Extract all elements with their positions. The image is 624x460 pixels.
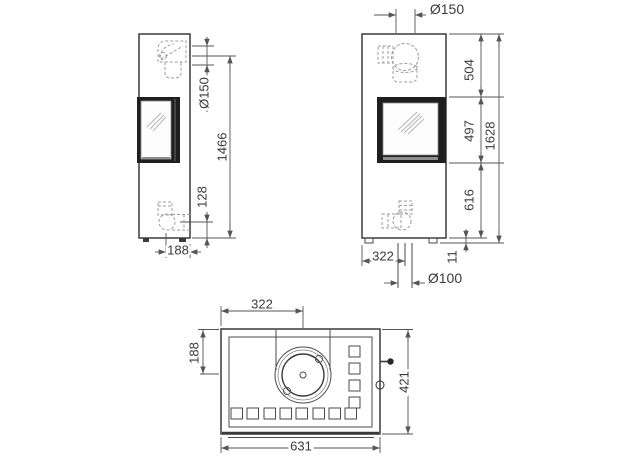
- vent-column: [349, 346, 360, 408]
- dim-front-feet-height: 11: [445, 250, 460, 264]
- dim-front-top-section: 504: [462, 59, 477, 81]
- dim-top-flue-offset-x: 322: [251, 297, 273, 312]
- dim-top-flue-offset-y: 188: [187, 342, 202, 364]
- side-bottom-flue-elbow: [158, 202, 190, 230]
- dim-top-depth: 421: [397, 371, 412, 393]
- side-top-flue-elbow: [158, 41, 186, 78]
- flue-center-mark: [300, 372, 306, 378]
- top-flue-collar: [275, 347, 331, 403]
- dim-front-lower-flue-diameter: Ø100: [428, 270, 462, 286]
- door-handle: [376, 358, 394, 389]
- dim-side-rear-outlet-height: 128: [195, 186, 210, 208]
- technical-drawing-page: Ø150 1466 128 188: [0, 0, 624, 460]
- dim-front-lower-section: 616: [462, 189, 477, 211]
- top-view: 322 188 421 631: [187, 297, 414, 454]
- stove-dimension-drawing: Ø150 1466 128 188: [0, 0, 624, 460]
- handle-knob: [387, 358, 393, 364]
- dim-side-rear-outlet-offset: 188: [167, 243, 189, 258]
- side-foot-rear: [179, 238, 186, 242]
- dim-front-door-height: 497: [462, 120, 477, 142]
- front-top-flue-elbow: [378, 44, 419, 83]
- side-foot-front: [143, 238, 149, 242]
- side-view: Ø150 1466 128 188: [137, 34, 236, 258]
- vent-row: [231, 408, 357, 419]
- dim-front-flue-diameter: Ø150: [430, 1, 464, 17]
- front-door: [377, 97, 446, 163]
- top-inner-panel: [229, 337, 372, 427]
- dim-front-total-height: 1628: [483, 122, 498, 151]
- dim-side-outlet-height: 1466: [215, 133, 230, 162]
- dim-top-width: 631: [290, 439, 312, 454]
- front-bottom-flue-elbow: [382, 201, 412, 230]
- side-door: [137, 97, 180, 163]
- front-bottom-pipe: [398, 243, 412, 288]
- dim-front-outlet-offset: 322: [372, 249, 394, 264]
- front-view: Ø150 504 497 616 1628 11 322 Ø100: [362, 1, 504, 288]
- dim-side-flue-diameter: Ø150: [197, 77, 212, 109]
